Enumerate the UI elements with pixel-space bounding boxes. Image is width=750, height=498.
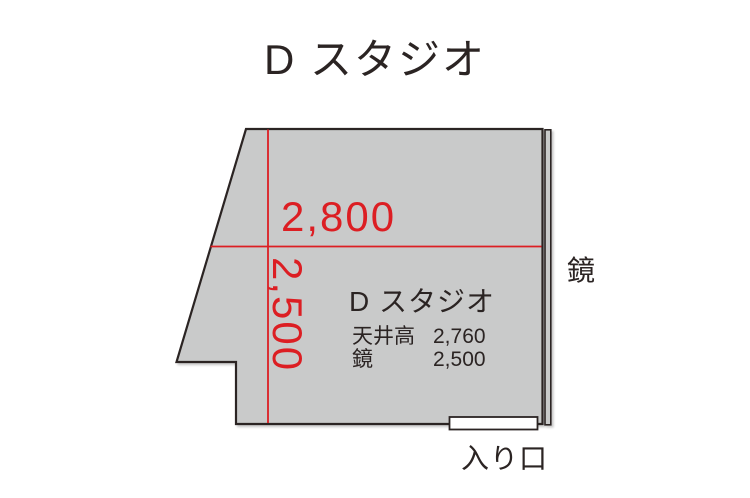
room-specs-table: 天井高 2,760 鏡 2,500 (352, 325, 486, 371)
spec-row-ceiling: 天井高 2,760 (352, 325, 486, 348)
floorplan-svg (0, 0, 750, 498)
floorplan-canvas: D スタジオ 2,800 2,500 D スタジオ 天井高 2,760 鏡 2,… (0, 0, 750, 498)
depth-dimension-label: 2,500 (266, 257, 308, 372)
floorplan-shape-group (177, 129, 551, 425)
spec-row-mirror: 鏡 2,500 (352, 348, 486, 371)
mirror-side-label: 鏡 (567, 249, 595, 289)
spec-label-ceiling: 天井高 (352, 325, 433, 348)
mirror-strip (545, 130, 551, 425)
width-dimension-label: 2,800 (281, 196, 396, 238)
spec-label-mirror: 鏡 (352, 348, 433, 371)
entrance-label: 入り口 (461, 437, 548, 477)
spec-value-ceiling: 2,760 (433, 325, 486, 348)
room-polygon (177, 129, 543, 424)
entrance-rect (450, 417, 538, 430)
room-name-label: D スタジオ (349, 280, 495, 320)
spec-value-mirror: 2,500 (433, 348, 486, 371)
